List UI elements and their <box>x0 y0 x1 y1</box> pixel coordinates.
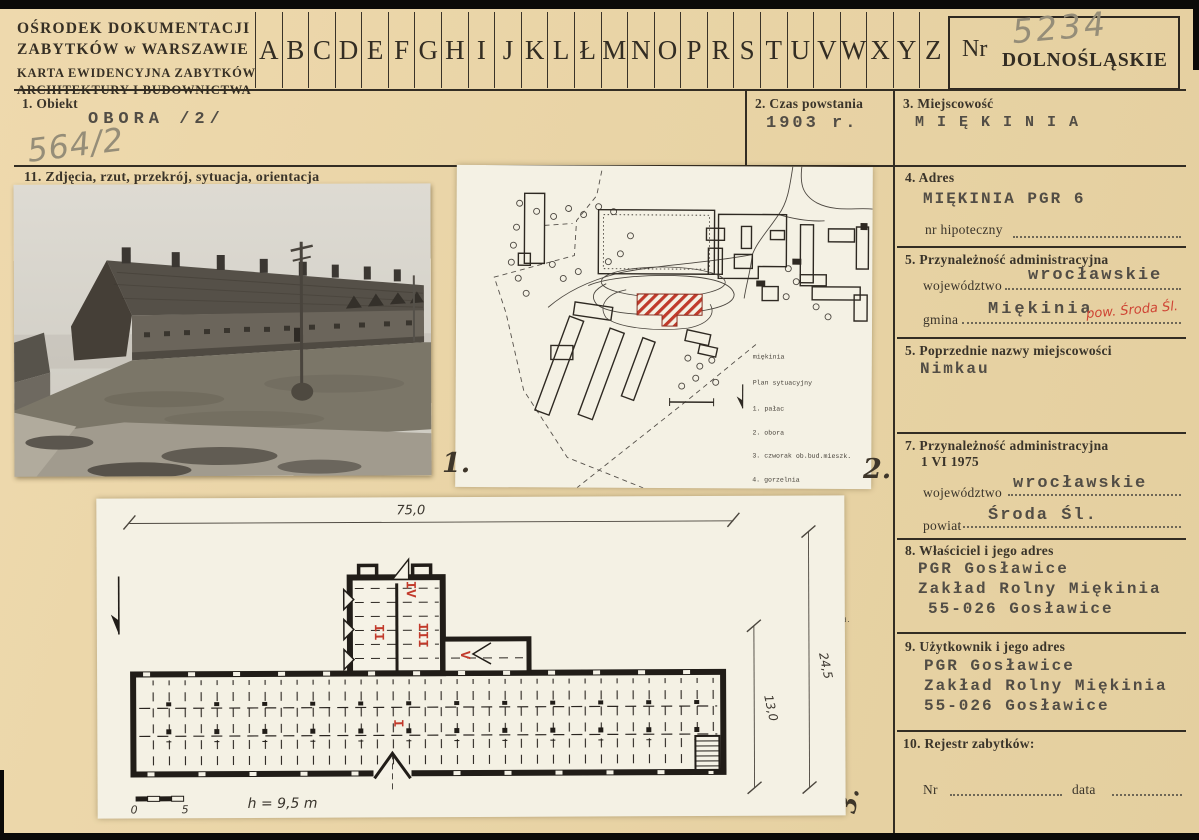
powiat-line <box>958 526 1181 528</box>
main-column-divider <box>893 90 895 833</box>
alphabet-letter: Z <box>920 12 946 88</box>
poprzednie-value: Nimkau <box>920 360 990 378</box>
header-org: OŚRODEK DOKUMENTACJI ZABYTKÓW w WARSZAWI… <box>17 20 256 98</box>
nr-handwritten-value: 5234 <box>1010 4 1109 51</box>
obiekt-label: 1. Obiekt <box>22 96 78 112</box>
przynaleznosc1975-sublabel: 1 VI 1975 <box>921 454 979 470</box>
alphabet-letter: P <box>681 12 708 88</box>
wlasciciel-line2: Zakład Rolny Miękinia <box>918 580 1162 598</box>
divider <box>897 730 1186 732</box>
barn-photo-drawing <box>13 183 431 476</box>
org-line2: ZABYTKÓW w WARSZAWIE <box>17 41 256 59</box>
scale-start: 0 <box>131 803 138 816</box>
gmina-label: gmina <box>923 312 958 328</box>
hipoteczny-label: nr hipoteczny <box>925 222 1003 238</box>
divider <box>897 246 1186 248</box>
scale-end: 5 <box>182 803 189 816</box>
adres-value: MIĘKINIA PGR 6 <box>923 190 1085 208</box>
wlasciciel-label: 8. Właściciel i jego adres <box>905 543 1054 559</box>
uzytkownik-label: 9. Użytkownik i jego adres <box>905 639 1065 655</box>
wojewodztwo-value: wrocławskie <box>1028 266 1162 285</box>
region-stamp: DOLNOŚLĄSKIE <box>1002 50 1168 72</box>
alphabet-letter: C <box>309 12 336 88</box>
wojewodztwo1975-label: województwo <box>923 485 1002 501</box>
wojewodztwo-line <box>1005 288 1181 290</box>
wojewodztwo-label: województwo <box>923 278 1002 294</box>
alphabet-letter: B <box>283 12 310 88</box>
uzytkownik-line3: 55-026 Gosławice <box>924 697 1110 715</box>
legend-line: 4. gorzelnia <box>752 476 870 484</box>
floorplan-width-dim: 24,5 <box>816 651 835 680</box>
site-plan-caption: 2. <box>863 454 891 485</box>
rejestr-data-label: data <box>1072 782 1096 798</box>
alphabet-letter: H <box>442 12 469 88</box>
alphabet-letter: R <box>708 12 735 88</box>
nr-label: Nr <box>962 36 987 63</box>
alphabet-letter: S <box>734 12 761 88</box>
rejestr-nr-label: Nr <box>923 782 938 798</box>
adres-label: 4. Adres <box>905 170 954 186</box>
alphabet-letter: N <box>628 12 655 88</box>
czas-label: 2. Czas powstania <box>755 96 863 112</box>
legend-line: 3. czworak ob.bud.mieszk. <box>752 453 870 461</box>
alphabet-letter: M <box>602 12 629 88</box>
room-number: V <box>456 651 472 660</box>
header-rule <box>14 89 1186 91</box>
floor-plan-drawing: 75,0 <box>96 495 845 818</box>
przynaleznosc1975-label: 7. Przynależność administracyjna <box>905 438 1108 454</box>
room-number: IV <box>402 581 418 598</box>
divider <box>745 90 747 166</box>
alphabet-letter: X <box>867 12 894 88</box>
floorplan-length-dim: 75,0 <box>396 503 425 518</box>
alphabet-letter: V <box>814 12 841 88</box>
room-number: I <box>389 719 405 727</box>
alphabet-strip: A B C D E F G H I J K L Ł M N O P R S T … <box>255 12 946 88</box>
site-plan-sheet: miękinia Plan sytuacyjny 1. pałac 2. obo… <box>455 165 873 489</box>
barn-photo <box>13 183 431 476</box>
legend-line: 1. pałac <box>753 406 871 414</box>
uzytkownik-line1: PGR Gosławice <box>924 657 1075 675</box>
alphabet-letter: O <box>655 12 682 88</box>
scanned-card: OŚRODEK DOKUMENTACJI ZABYTKÓW w WARSZAWI… <box>0 0 1199 840</box>
divider <box>897 337 1186 339</box>
alphabet-letter: D <box>336 12 363 88</box>
karta-line1: KARTA EWIDENCYJNA ZABYTKÓW <box>17 66 256 81</box>
scan-edge-bottom <box>0 833 1199 840</box>
floor-plan-sheet: 75,0 <box>96 495 845 818</box>
height-note: h = 9,5 m <box>248 796 318 812</box>
site-plan-subtitle: Plan sytuacyjny <box>753 379 871 387</box>
alphabet-letter: L <box>548 12 575 88</box>
alphabet-letter: G <box>415 12 442 88</box>
powiat-value: Środa Śl. <box>988 506 1098 525</box>
alphabet-letter: W <box>841 12 868 88</box>
gmina-line <box>962 322 1181 324</box>
alphabet-letter: Y <box>894 12 921 88</box>
wojewodztwo1975-line <box>1008 494 1181 496</box>
miejscowosc-label: 3. Miejscowość <box>903 96 993 112</box>
legend-line: 2. obora <box>752 429 870 437</box>
divider <box>897 538 1186 540</box>
miejscowosc-value: M I Ę K I N I A <box>915 114 1080 131</box>
divider <box>897 632 1186 634</box>
site-plan-title: miękinia <box>753 353 871 361</box>
alphabet-letter: K <box>522 12 549 88</box>
scan-edge-left <box>0 770 4 833</box>
gmina-value: Miękinia <box>988 300 1094 319</box>
floorplan-inner-dim: 13,0 <box>761 693 780 722</box>
alphabet-letter: F <box>389 12 416 88</box>
rejestr-data-line <box>1112 794 1182 796</box>
rejestr-label: 10. Rejestr zabytków: <box>903 736 1035 752</box>
uzytkownik-line2: Zakład Rolny Miękinia <box>924 677 1168 695</box>
scan-edge-top <box>0 0 1199 9</box>
alphabet-letter: T <box>761 12 788 88</box>
alphabet-letter: I <box>469 12 496 88</box>
room-number: II <box>370 624 386 641</box>
scan-edge-right <box>1193 0 1199 70</box>
alphabet-letter: J <box>495 12 522 88</box>
rejestr-nr-line <box>950 794 1062 796</box>
divider <box>897 432 1186 434</box>
czas-value: 1903 r. <box>766 114 858 133</box>
alphabet-letter: E <box>362 12 389 88</box>
wlasciciel-line1: PGR Gosławice <box>918 560 1069 578</box>
room-number: III <box>414 623 430 648</box>
poprzednie-label: 5. Poprzednie nazwy miejscowości <box>905 343 1112 359</box>
wojewodztwo1975-value: wrocławskie <box>1013 474 1147 493</box>
alphabet-letter: A <box>256 12 283 88</box>
hipoteczny-line <box>1013 236 1181 238</box>
photo-caption: 1. <box>442 448 470 479</box>
wlasciciel-line3: 55-026 Gosławice <box>928 600 1114 618</box>
alphabet-letter: Ł <box>575 12 602 88</box>
org-line1: OŚRODEK DOKUMENTACJI <box>17 20 256 38</box>
nr-box: Nr 5234 DOLNOŚLĄSKIE <box>948 16 1180 90</box>
alphabet-letter: U <box>788 12 815 88</box>
powiat-label: powiat <box>923 518 962 534</box>
